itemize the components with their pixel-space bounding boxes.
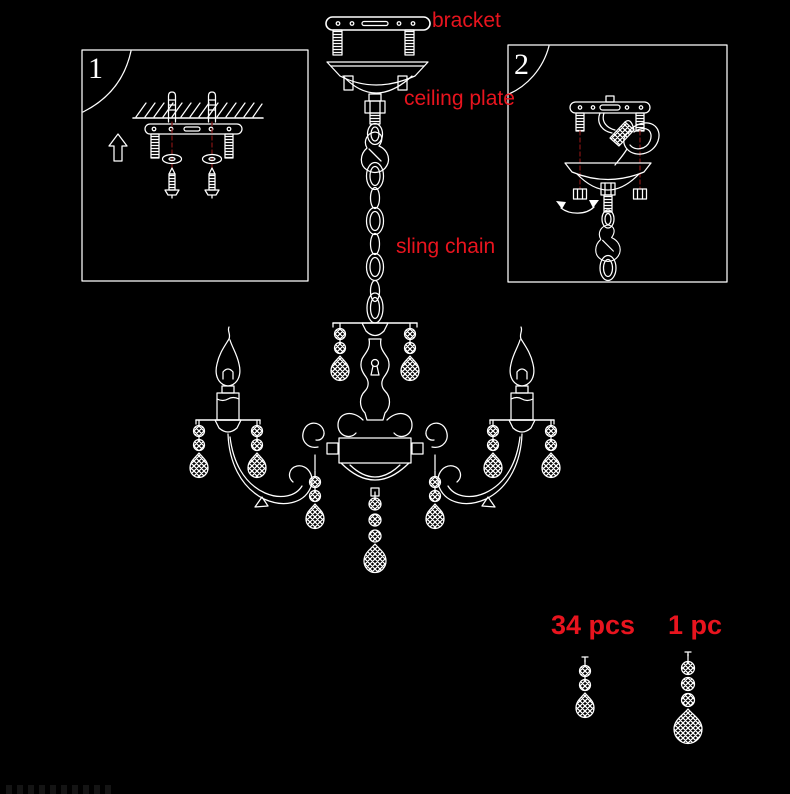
sling-chain-label: sling chain (396, 235, 495, 258)
mounting-screw (205, 168, 219, 198)
large-drop-count-label: 1 pc (668, 611, 722, 641)
bracket-drawing (326, 17, 430, 55)
sling-chain-drawing (361, 132, 388, 302)
bracket-label: bracket (432, 9, 501, 32)
right-candle-arm (412, 327, 560, 529)
step2-diagram (556, 96, 659, 281)
mounting-screw (165, 168, 179, 198)
up-arrow-icon (109, 134, 127, 161)
small-drop-count-label: 34 pcs (551, 611, 635, 641)
watermark-fragment (6, 785, 116, 794)
chandelier-drawing (190, 293, 560, 573)
hex-nut (574, 189, 587, 199)
chandelier-column (331, 293, 419, 573)
diagram-line-art (0, 0, 790, 794)
step-1-number: 1 (88, 54, 103, 84)
step-2-number: 2 (514, 50, 529, 80)
step1-diagram (109, 92, 263, 198)
ceiling-plate-label: ceiling plate (404, 87, 515, 110)
large-crystal-drop-drawing (674, 652, 702, 744)
installation-diagram-sheet: bracket ceiling plate sling chain 1 2 34… (0, 0, 790, 794)
ceiling-hatching (136, 103, 262, 117)
step1-box (82, 50, 308, 281)
rotate-arrow-icon (556, 200, 599, 213)
small-crystal-drop-drawing (576, 657, 594, 718)
hex-nut (634, 189, 647, 199)
wire-and-connector (599, 113, 659, 165)
left-candle-arm (190, 327, 338, 529)
